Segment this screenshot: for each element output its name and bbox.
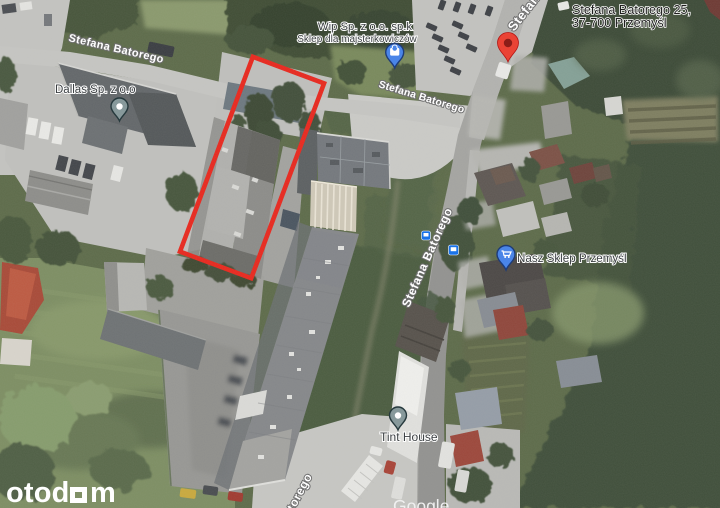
svg-text:m: m xyxy=(90,477,116,508)
svg-text:Wip Sp. z o.o. sp.k: Wip Sp. z o.o. sp.k xyxy=(318,21,413,33)
svg-text:Stefana Batorego 25,: Stefana Batorego 25, xyxy=(572,3,691,17)
svg-text:Tint House: Tint House xyxy=(380,430,438,444)
svg-text:Nasz Sklep Przemyśl: Nasz Sklep Przemyśl xyxy=(517,252,627,265)
svg-text:37-700 Przemyśl: 37-700 Przemyśl xyxy=(572,16,667,30)
svg-text:Dallas Sp. z o.o: Dallas Sp. z o.o xyxy=(55,84,136,96)
svg-text:Sklep dla majsterkowiczów: Sklep dla majsterkowiczów xyxy=(297,34,417,45)
svg-text:Google: Google xyxy=(393,496,449,508)
svg-text:otod: otod xyxy=(6,477,70,508)
